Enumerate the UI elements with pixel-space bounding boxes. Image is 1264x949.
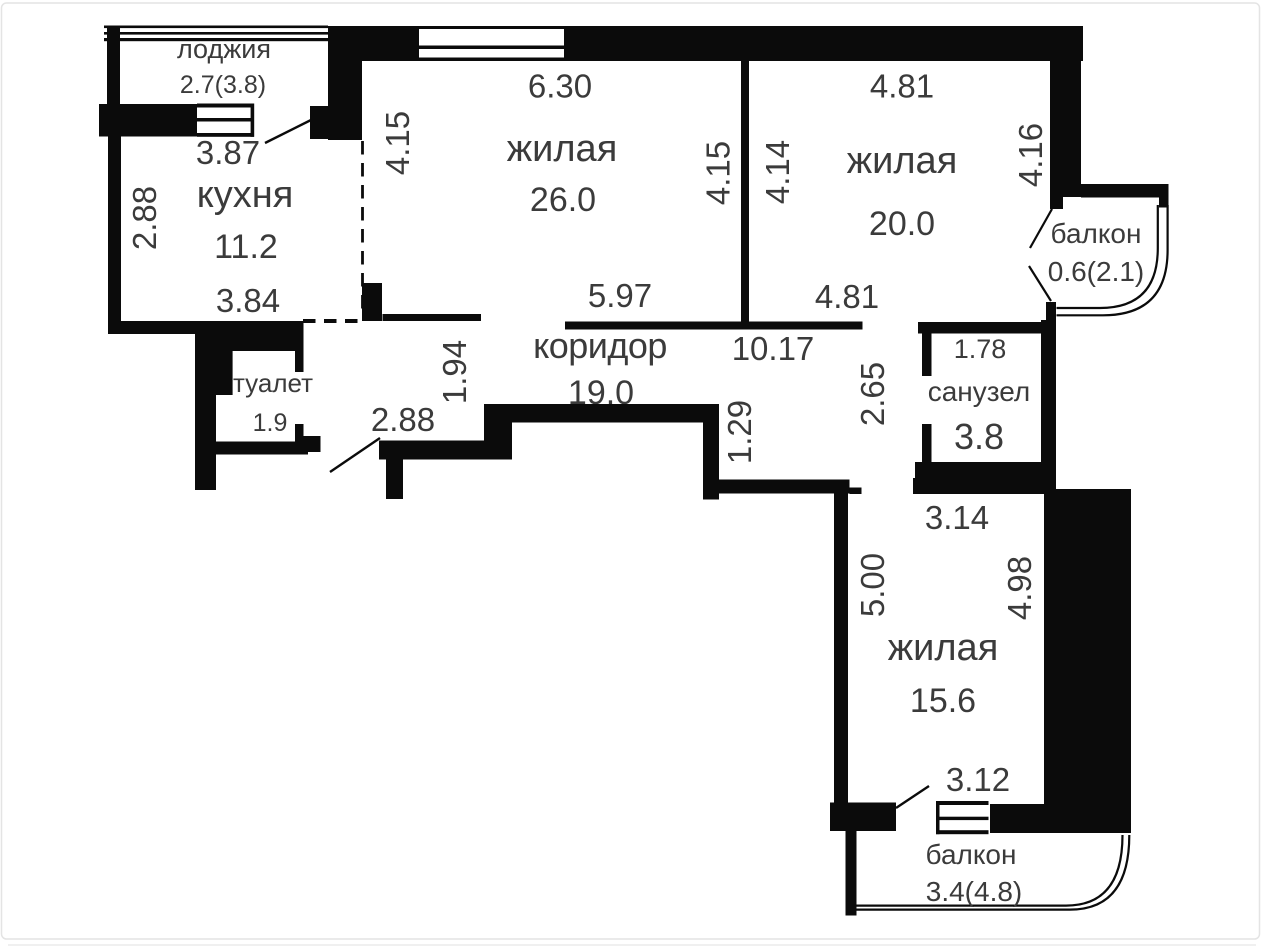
svg-text:4.98: 4.98 [1001,556,1038,620]
svg-text:2.88: 2.88 [126,186,163,250]
svg-text:3.4(4.8): 3.4(4.8) [926,876,1023,907]
svg-text:3.8: 3.8 [954,416,1004,457]
svg-text:2.7(3.8): 2.7(3.8) [180,71,266,99]
svg-text:5.97: 5.97 [588,277,652,314]
svg-text:4.15: 4.15 [379,111,416,175]
svg-text:4.14: 4.14 [759,140,796,204]
svg-text:3.84: 3.84 [216,282,280,319]
svg-text:20.0: 20.0 [869,205,935,243]
svg-text:2.88: 2.88 [371,401,435,438]
svg-text:15.6: 15.6 [910,682,976,720]
svg-text:5.00: 5.00 [854,553,891,617]
svg-text:11.2: 11.2 [214,228,278,266]
svg-text:балкон: балкон [1051,218,1142,249]
svg-text:3.14: 3.14 [925,499,989,536]
svg-text:3.12: 3.12 [946,761,1010,798]
svg-text:балкон: балкон [926,839,1017,870]
svg-text:жилая: жилая [507,128,618,170]
svg-text:26.0: 26.0 [530,181,596,219]
svg-text:жилая: жилая [847,140,958,182]
svg-text:10.17: 10.17 [732,330,815,367]
svg-text:0.6(2.1): 0.6(2.1) [1048,256,1145,287]
svg-text:4.81: 4.81 [870,68,934,105]
svg-text:4.81: 4.81 [815,278,879,315]
svg-text:жилая: жилая [888,627,999,669]
svg-text:санузел: санузел [928,376,1031,407]
svg-text:1.94: 1.94 [436,340,473,404]
svg-text:3.87: 3.87 [196,134,260,171]
svg-text:1.9: 1.9 [253,409,288,437]
svg-text:4.15: 4.15 [700,141,737,205]
svg-text:коридор: коридор [533,325,667,366]
svg-text:2.65: 2.65 [854,362,891,426]
svg-text:лоджия: лоджия [177,34,271,64]
svg-text:6.30: 6.30 [528,68,592,105]
svg-text:4.16: 4.16 [1012,123,1049,187]
svg-text:1.29: 1.29 [721,400,758,464]
svg-text:1.78: 1.78 [954,334,1007,364]
svg-text:кухня: кухня [197,174,294,216]
svg-text:туалет: туалет [233,368,313,398]
